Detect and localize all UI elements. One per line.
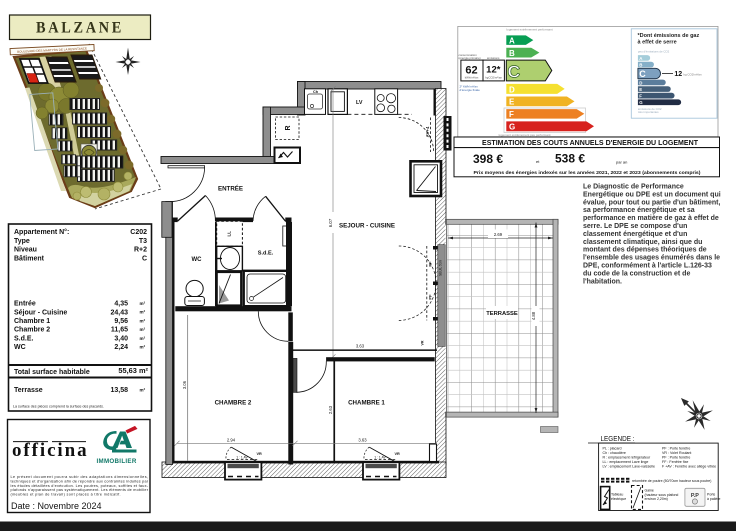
svg-text:AV+4: AV+4 [425, 126, 430, 137]
svg-text:PF: PF [428, 261, 433, 267]
svg-text:IMMOBILIER: IMMOBILIER [97, 458, 137, 465]
svg-text:S.d.E.: S.d.E. [258, 251, 274, 257]
svg-text:PL : placard: PL : placard [603, 447, 622, 451]
svg-text:Chambre 2: Chambre 2 [14, 327, 50, 334]
svg-text:R : emplacement réfrigérateur: R : emplacement réfrigérateur [603, 456, 652, 460]
svg-text:classement climatique, ainsi q: classement climatique, ainsi que du [583, 239, 702, 246]
svg-text:les études détaillées d'exécut: les études détaillées d'exécution. Les p… [11, 484, 149, 488]
svg-text:C: C [142, 255, 147, 262]
svg-text:évalue, pour tout ou partie d': évalue, pour tout ou partie d'un bâtimen… [583, 199, 720, 206]
svg-text:ENTRÉE: ENTRÉE [218, 185, 243, 193]
svg-text:CHAMBRE 2: CHAMBRE 2 [215, 400, 252, 407]
svg-text:DPE, conformément à l'article: DPE, conformément à l'article L.126-33 [583, 263, 712, 270]
svg-text:B: B [509, 49, 515, 58]
svg-text:VR: VR [257, 452, 263, 456]
svg-text:techniques et d'organisation a: techniques et d'organisation afin de rép… [11, 479, 149, 483]
svg-text:4.88: 4.88 [531, 311, 536, 320]
svg-text:F: F [509, 110, 514, 119]
svg-text:398 €: 398 € [473, 152, 503, 166]
svg-text:d'énergie finale: d'énergie finale [460, 88, 481, 92]
svg-text:PF: PF [428, 294, 433, 300]
svg-text:Chambre 1: Chambre 1 [14, 318, 50, 325]
svg-text:1 : 1 AV: 1 : 1 AV [236, 456, 248, 460]
svg-text:m²: m² [140, 336, 146, 341]
svg-text:T3: T3 [139, 238, 147, 245]
svg-text:SEUIL 5cm: SEUIL 5cm [439, 260, 443, 276]
svg-text:Le présent document pourra sub: Le présent document pourra subir des ada… [11, 475, 149, 479]
svg-text:55,63 m²: 55,63 m² [118, 366, 148, 375]
svg-text:3.06: 3.06 [182, 380, 187, 389]
svg-text:ESTIMATION DES COUTS ANNUELS D: ESTIMATION DES COUTS ANNUELS D'ENERGIE D… [482, 138, 698, 147]
svg-text:11,65: 11,65 [111, 327, 128, 334]
svg-text:TERRASSE: TERRASSE [486, 311, 518, 317]
svg-text:retombée de poutre (50/70cm ha: retombée de poutre (50/70cm hauteur sous… [632, 479, 711, 483]
svg-text:WC: WC [14, 344, 26, 351]
svg-text:A: A [509, 36, 515, 45]
svg-text:S.d.E.: S.d.E. [14, 335, 34, 342]
svg-text:D: D [639, 80, 642, 85]
svg-text:sa performance énergétique et: sa performance énergétique et sa [583, 207, 695, 214]
svg-text:Date : Novembre 2024: Date : Novembre 2024 [11, 501, 102, 511]
svg-text:G: G [639, 100, 643, 105]
svg-text:2.63: 2.63 [328, 405, 333, 414]
svg-text:SEJOUR - CUISINE: SEJOUR - CUISINE [339, 223, 395, 230]
svg-text:24,43: 24,43 [110, 309, 128, 316]
svg-text:G: G [509, 123, 515, 132]
svg-text:62: 62 [465, 65, 477, 77]
svg-text:m²: m² [140, 318, 146, 323]
svg-text:2.94: 2.94 [227, 438, 236, 443]
svg-text:par an: par an [616, 160, 627, 165]
svg-text:m²: m² [140, 310, 146, 315]
svg-text:kgCO2/m²/an: kgCO2/m²/an [485, 76, 502, 80]
svg-text:2,24: 2,24 [114, 344, 128, 351]
svg-text:environ 2,20m): environ 2,20m) [645, 497, 668, 501]
svg-text:m²: m² [140, 327, 146, 332]
svg-text:électrique: électrique [611, 497, 626, 501]
svg-text:F: F [639, 94, 642, 99]
svg-text:serre. Le DPE se compose d'un: serre. Le DPE se compose d'un [583, 223, 687, 230]
svg-text:P.P: P.P [691, 493, 699, 499]
svg-text:LEGENDE :: LEGENDE : [601, 434, 635, 443]
svg-text:Bâtiment: Bâtiment [14, 255, 45, 262]
svg-text:D: D [509, 85, 515, 94]
svg-text:Total surface habitable: Total surface habitable [14, 369, 90, 376]
svg-text:3.63: 3.63 [358, 438, 367, 443]
svg-text:3,40: 3,40 [114, 335, 128, 342]
svg-text:VR: VR [421, 340, 425, 345]
svg-text:CHAMBRE 1: CHAMBRE 1 [348, 400, 385, 407]
svg-text:1 : 1 AV: 1 : 1 AV [374, 456, 386, 460]
svg-text:C: C [508, 62, 521, 82]
svg-text:Prix moyens des énergies index: Prix moyens des énergies indexés sur les… [474, 170, 701, 175]
svg-text:Ch: Ch [313, 90, 319, 94]
svg-text:m²: m² [140, 387, 146, 392]
svg-text:du code de la construction et: du code de la construction et de [583, 270, 690, 277]
svg-text:classement énergétique et d'un: classement énergétique et d'un [583, 231, 687, 238]
svg-text:plafonds n'apparaissent pas sy: plafonds n'apparaissent pas systématique… [11, 488, 149, 492]
svg-text:F +AV : Fenêtre avec allège vi: F +AV : Fenêtre avec allège vitrée [662, 465, 716, 469]
svg-text:R: R [285, 125, 292, 130]
svg-text:9,56: 9,56 [114, 318, 128, 325]
svg-text:très importantes: très importantes [638, 110, 659, 114]
svg-text:m²: m² [140, 345, 146, 350]
svg-text:kWh/m²/an: kWh/m²/an [465, 76, 479, 80]
svg-text:12*: 12* [486, 65, 501, 76]
svg-text:LL: LL [227, 231, 232, 237]
svg-text:FF : Fenêtre fixe: FF : Fenêtre fixe [662, 460, 688, 464]
svg-text:LV: LV [356, 100, 363, 106]
svg-text:montant des dépenses théorique: montant des dépenses théoriques de [583, 247, 707, 254]
svg-text:LV : emplacement Lave-vaissell: LV : emplacement Lave-vaisselle [603, 465, 655, 469]
svg-text:VR : Volet Roulant: VR : Volet Roulant [662, 451, 691, 455]
svg-text:B: B [639, 62, 642, 67]
svg-text:4,35: 4,35 [114, 301, 128, 308]
svg-text:3.63: 3.63 [356, 344, 365, 349]
svg-text:Type: Type [14, 238, 30, 245]
svg-text:La surface des pièces comprend: La surface des pièces comprend la surfac… [13, 405, 104, 409]
svg-text:à palière: à palière [707, 497, 720, 501]
svg-text:logement extrêmement performan: logement extrêmement performant [507, 28, 553, 32]
svg-text:R+2: R+2 [134, 247, 147, 254]
svg-text:12: 12 [674, 71, 682, 78]
svg-text:C: C [639, 69, 646, 79]
svg-text:Niveau: Niveau [14, 247, 37, 254]
svg-text:l'ensemble des usages énumérés: l'ensemble des usages énumérés dans le [583, 255, 720, 262]
svg-text:BALZANE: BALZANE [36, 20, 124, 37]
svg-text:à effet de serre: à effet de serre [638, 39, 677, 45]
svg-text:LL : emplacement Lave linge: LL : emplacement Lave linge [603, 460, 649, 464]
svg-text:13,58: 13,58 [110, 387, 128, 394]
svg-text:Energétique ou DPE est un docu: Energétique ou DPE est un document qui [583, 191, 721, 198]
svg-text:PF : Porte fenêtre: PF : Porte fenêtre [662, 447, 690, 451]
svg-text:(meubles et plan de travail) s: (meubles et plan de travail) sont placés… [11, 493, 121, 497]
svg-text:m²: m² [140, 301, 146, 306]
svg-text:E: E [509, 98, 515, 107]
svg-text:Le Diagnostic de Performance: Le Diagnostic de Performance [583, 184, 684, 191]
svg-text:PF : Porte fenêtre: PF : Porte fenêtre [662, 456, 690, 460]
svg-text:Séjour - Cuisine: Séjour - Cuisine [14, 309, 67, 316]
svg-text:6.07: 6.07 [328, 218, 333, 227]
svg-text:2.69: 2.69 [494, 232, 503, 237]
svg-text:l'habitation.: l'habitation. [583, 278, 622, 285]
svg-text:538 €: 538 € [555, 152, 585, 166]
svg-text:performance en matière de gaz: performance en matière de gaz à effet de [583, 215, 719, 222]
svg-text:C202: C202 [130, 229, 147, 236]
svg-text:Terrasse: Terrasse [14, 387, 43, 394]
svg-text:*Dont émissions de gaz: *Dont émissions de gaz [638, 33, 700, 39]
svg-text:VR: VR [395, 452, 401, 456]
svg-text:Entrée: Entrée [14, 301, 36, 308]
svg-text:Ch : chaudière: Ch : chaudière [603, 451, 626, 455]
svg-text:Appartement N°:: Appartement N°: [14, 228, 69, 236]
svg-text:peu d'émissions de CO2: peu d'émissions de CO2 [638, 50, 670, 54]
svg-text:E: E [639, 87, 642, 92]
svg-text:WC: WC [192, 257, 203, 263]
svg-text:kg CO2/m²/an: kg CO2/m²/an [684, 73, 702, 77]
